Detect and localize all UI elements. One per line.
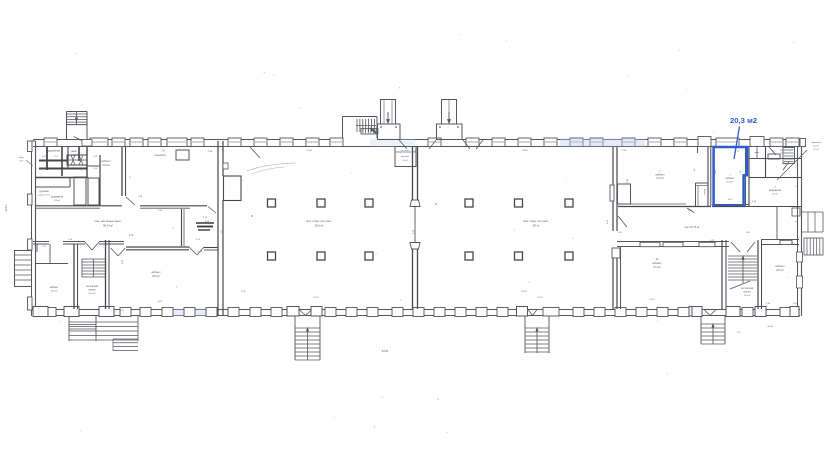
svg-text:8,1 м²: 8,1 м² (772, 193, 778, 196)
svg-text:умыв.: умыв. (71, 150, 78, 153)
svg-text:кор. 41,73 м²: кор. 41,73 м² (685, 226, 700, 229)
svg-text:клетка: клетка (89, 290, 97, 292)
svg-text:тамбур: тамбур (704, 189, 706, 195)
svg-text:кабинет: кабинет (101, 160, 111, 163)
svg-text:287 м²: 287 м² (532, 225, 539, 228)
svg-text:83,6 м²: 83,6 м² (152, 275, 160, 278)
svg-text:венткам.: венткам. (401, 150, 410, 152)
svg-text:пом. откры того расп.: пом. откры того расп. (523, 220, 549, 223)
svg-text:уборн.: уборн. (780, 150, 786, 152)
svg-text:кабинет: кабинет (655, 174, 665, 177)
svg-text:раздевалка: раздевалка (51, 197, 64, 199)
svg-text:20,3 м2: 20,3 м2 (730, 116, 757, 125)
svg-text:кабинет: кабинет (775, 265, 785, 268)
svg-text:2,5 м²: 2,5 м² (781, 152, 786, 155)
svg-text:4,76: 4,76 (129, 235, 134, 237)
svg-text:15,4 м²: 15,4 м² (744, 294, 751, 297)
svg-text:16,4 м²: 16,4 м² (50, 290, 57, 293)
svg-text:1,5: 1,5 (796, 186, 799, 188)
svg-text:раздевалка: раздевалка (769, 190, 782, 192)
svg-text:шахта: шахта (813, 146, 820, 148)
svg-text:пом. масляных выкл.: пом. масляных выкл. (94, 219, 122, 223)
svg-text:98,34 м²: 98,34 м² (103, 224, 113, 228)
svg-text:пищеблок: пищеблок (155, 154, 167, 157)
svg-text:67,4 м²: 67,4 м² (653, 266, 661, 269)
svg-text:17,6 м²: 17,6 м² (656, 177, 664, 180)
svg-text:37,12: 37,12 (537, 297, 543, 299)
svg-text:10,12: 10,12 (649, 299, 655, 301)
svg-text:54,62: 54,62 (382, 350, 389, 353)
svg-text:вх: вх (795, 221, 797, 223)
svg-text:8,9 м²: 8,9 м² (54, 199, 60, 202)
svg-text:лестничная: лестничная (86, 286, 99, 288)
svg-text:кабинет: кабинет (151, 271, 161, 274)
svg-text:кабинет: кабинет (726, 177, 736, 180)
svg-text:Б: Б (251, 214, 253, 218)
svg-text:пом. откры того расп.: пом. откры того расп. (306, 220, 332, 223)
svg-text:20,3 м²: 20,3 м² (726, 181, 733, 184)
svg-text:вход: вход (19, 157, 24, 159)
svg-text:290,6 м²: 290,6 м² (314, 225, 323, 228)
svg-text:16,08: 16,08 (767, 326, 773, 328)
svg-text:17,58: 17,58 (306, 150, 312, 152)
svg-text:лестничная: лестничная (741, 288, 754, 290)
svg-text:(3,97): (3,97) (4, 204, 8, 211)
svg-text:умыв.: умыв. (754, 152, 760, 154)
svg-text:49,30: 49,30 (522, 150, 528, 152)
svg-text:уборная 1,9: уборная 1,9 (38, 195, 50, 197)
svg-text:кабинет: кабинет (50, 286, 60, 289)
svg-text:20,6 м²: 20,6 м² (776, 269, 784, 272)
svg-text:6,2 м²: 6,2 м² (402, 159, 408, 162)
svg-text:19,6 м²: 19,6 м² (102, 164, 110, 167)
svg-text:кабинет: кабинет (652, 262, 662, 265)
svg-text:10,6 м²: 10,6 м² (89, 292, 96, 295)
svg-text:0,98: 0,98 (746, 232, 750, 234)
svg-text:клетка: клетка (744, 292, 752, 294)
svg-text:57,02: 57,02 (521, 291, 527, 293)
svg-text:гардеробная: гардеробная (46, 150, 61, 153)
svg-text:Б: Б (435, 202, 437, 206)
svg-text:37,12: 37,12 (313, 297, 319, 299)
svg-text:душевая: душевая (39, 191, 49, 193)
svg-text:1,7 м²: 1,7 м² (813, 148, 819, 151)
svg-text:щитовая: щитовая (401, 156, 409, 158)
svg-text:лифтовая: лифтовая (811, 141, 822, 144)
